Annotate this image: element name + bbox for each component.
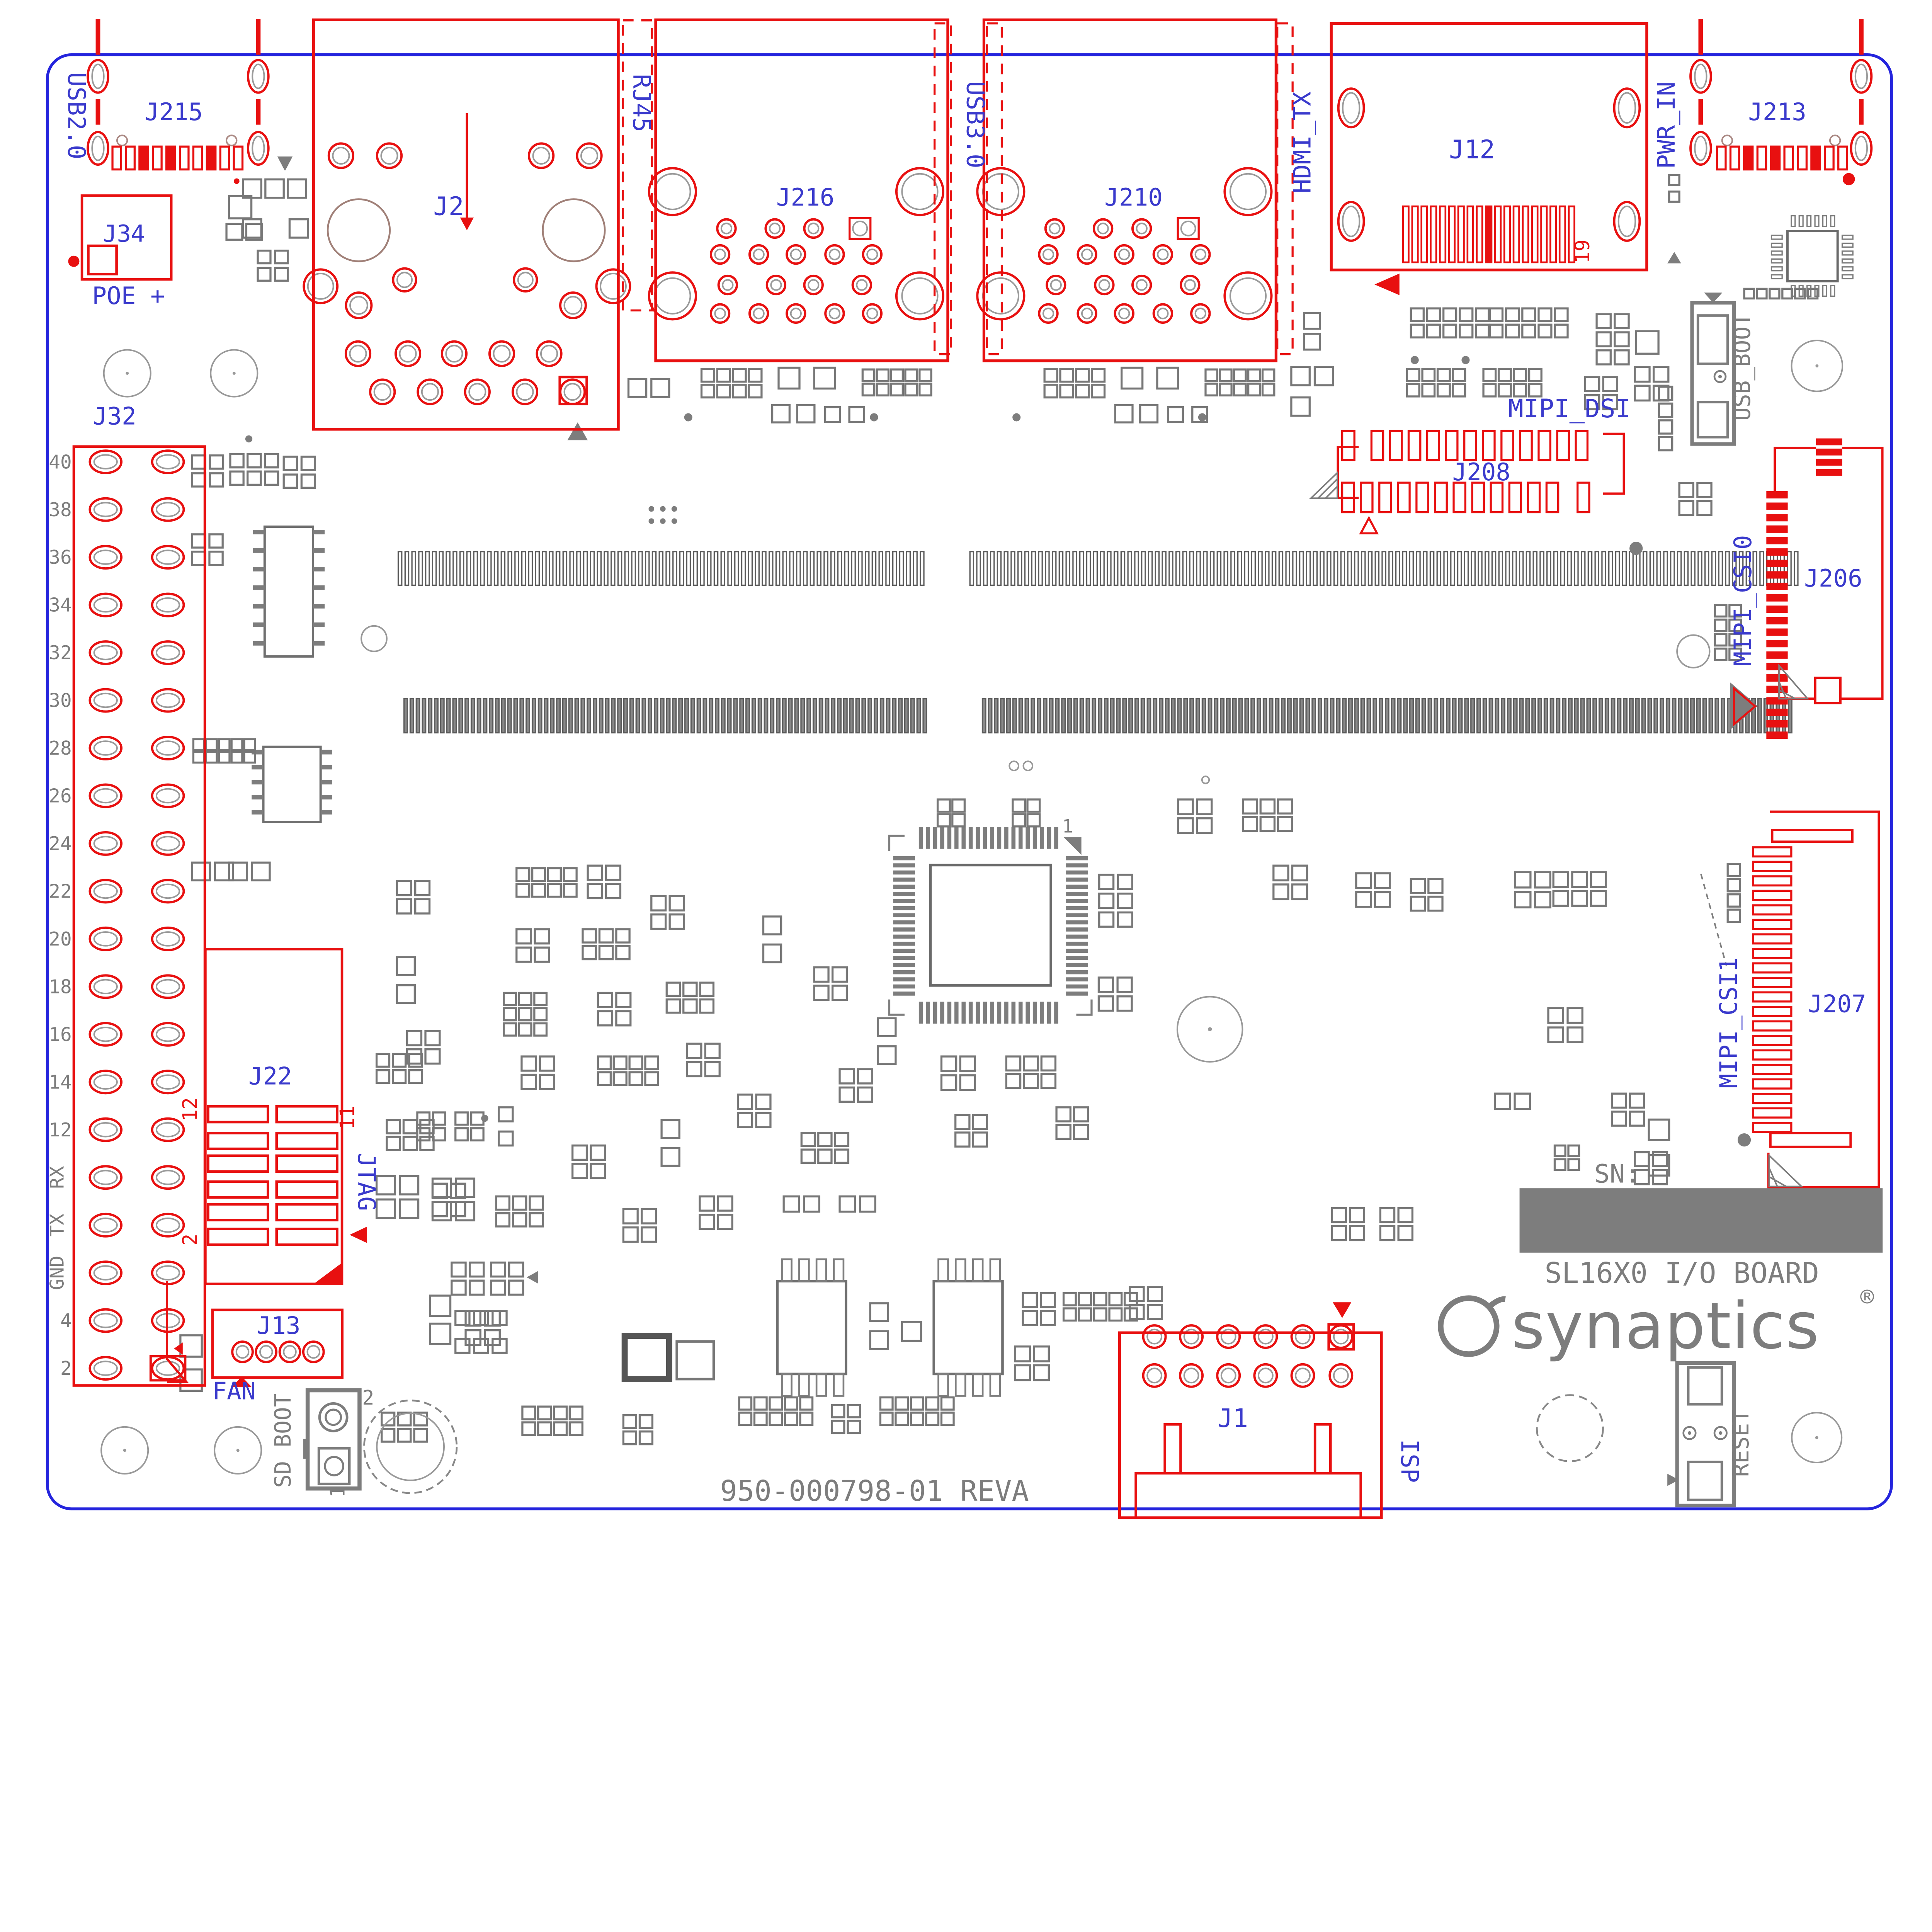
smd-component <box>749 385 762 398</box>
edge-finger <box>1471 699 1475 733</box>
pad-hole <box>581 148 597 164</box>
smd-component <box>1757 289 1767 298</box>
csi1-pad <box>1753 963 1791 973</box>
smd-component <box>1060 369 1073 382</box>
edge-finger <box>1196 699 1200 733</box>
smd-component <box>902 1322 921 1341</box>
edge-finger <box>1568 552 1571 585</box>
soic-pin <box>782 1374 792 1396</box>
edge-finger <box>982 699 986 733</box>
smd-component <box>701 369 714 382</box>
edge-finger <box>1605 699 1609 733</box>
qfp-pin <box>893 992 915 996</box>
edge-finger <box>728 699 731 733</box>
csi0-pad <box>1766 640 1787 647</box>
smd-component <box>1013 799 1025 812</box>
smd-component <box>920 384 931 395</box>
smd-component <box>598 1011 612 1026</box>
edge-finger <box>410 699 414 733</box>
edge-finger <box>1410 699 1413 733</box>
edge-finger <box>1269 699 1273 733</box>
smd-component <box>193 752 204 763</box>
jtag-pad <box>208 1229 268 1245</box>
soic-pin <box>939 1259 948 1281</box>
qfp-pin <box>961 1002 966 1024</box>
edge-finger <box>618 699 621 733</box>
edge-finger <box>1039 552 1042 585</box>
pad-hole <box>565 384 581 400</box>
via-dot <box>684 413 692 421</box>
edge-finger <box>1643 552 1647 585</box>
edge-finger <box>494 552 498 585</box>
pin1-dot <box>1843 173 1855 185</box>
pad-hole <box>156 980 179 994</box>
smd-component <box>1092 385 1105 398</box>
smd-component <box>701 385 714 398</box>
label-pin12: 12 <box>179 1097 202 1121</box>
smd-component <box>1398 1208 1412 1222</box>
edge-finger <box>1025 552 1028 585</box>
edge-finger <box>1306 699 1310 733</box>
smd-component <box>1260 799 1274 813</box>
edge-finger <box>1514 699 1517 733</box>
smd-component <box>517 868 529 881</box>
edge-finger <box>1362 552 1365 585</box>
edge-finger <box>646 552 649 585</box>
label-j12: J12 <box>1449 135 1495 165</box>
csi0-pad <box>1766 526 1787 533</box>
smd-component <box>1653 1170 1667 1184</box>
qfp-pin <box>1066 863 1088 867</box>
pad-hole <box>94 837 117 850</box>
edge-finger <box>426 552 429 585</box>
edge-finger <box>432 552 436 585</box>
smd-component <box>504 1008 516 1020</box>
csi1-pad <box>1753 1094 1791 1103</box>
smd-component <box>667 1000 680 1013</box>
smd-component <box>891 369 903 381</box>
smd-component <box>430 1296 451 1316</box>
csi1-pad <box>1753 1050 1791 1060</box>
smd-component <box>1234 369 1246 381</box>
jtag-pad <box>208 1106 268 1122</box>
j32-pin-label: 38 <box>49 498 71 521</box>
pad-hole <box>867 249 877 259</box>
smd-component <box>1495 1094 1510 1109</box>
smd-component <box>598 1056 611 1069</box>
edge-finger <box>1272 552 1276 585</box>
smd-component <box>1117 978 1132 992</box>
edge-finger <box>1451 552 1454 585</box>
csi1-pad <box>1753 992 1791 1002</box>
smd-component <box>425 1031 440 1045</box>
edge-finger <box>587 699 591 733</box>
j32-pin-label: 20 <box>49 928 71 950</box>
qfn-body <box>1787 231 1838 281</box>
qfp-pin <box>1066 970 1088 975</box>
smd-component <box>535 947 549 962</box>
smd-component <box>573 1146 587 1160</box>
edge-finger <box>557 699 560 733</box>
smd-component <box>591 1146 605 1160</box>
smd-component <box>645 1072 658 1085</box>
smd-component <box>284 457 297 470</box>
edge-finger <box>1667 699 1670 733</box>
smd-component <box>1422 384 1435 396</box>
hdmi-pad <box>1504 206 1510 262</box>
pad-hole <box>156 789 179 803</box>
qfp-pin <box>1066 892 1088 896</box>
pad-hole <box>94 789 117 803</box>
qfn-pin <box>1815 216 1819 226</box>
qfn-pin <box>1842 259 1853 263</box>
smd-pad <box>180 146 189 169</box>
smd-component <box>1808 289 1818 298</box>
edge-finger <box>1533 552 1537 585</box>
smd-component <box>451 1184 465 1198</box>
pad-hole <box>1695 136 1706 160</box>
edge-finger <box>1465 699 1468 733</box>
smd-component <box>920 369 931 381</box>
qfp-pin <box>926 1002 930 1024</box>
via-dot <box>649 518 654 524</box>
edge-finger <box>1664 552 1667 585</box>
smd-component <box>1429 879 1442 893</box>
label-usb2-port: USB2.0 <box>62 72 90 160</box>
pad-hole <box>94 1218 117 1232</box>
edge-finger <box>1288 699 1291 733</box>
edge-finger <box>862 699 866 733</box>
qfp-pin <box>926 827 930 849</box>
edge-finger <box>1361 699 1364 733</box>
qfp-pin <box>933 827 937 849</box>
smd-component <box>1603 377 1617 391</box>
label-j34: J34 <box>103 221 145 248</box>
soic-pin <box>834 1374 844 1396</box>
edge-finger <box>701 552 704 585</box>
j32-pin-label: GND <box>46 1256 68 1290</box>
reset-button <box>1667 1363 1734 1506</box>
smd-component <box>1262 369 1274 381</box>
pad-hole <box>715 249 725 259</box>
fiducial <box>226 135 236 145</box>
edge-finger <box>1417 552 1420 585</box>
smd-component <box>1023 1293 1037 1307</box>
edge-finger <box>1485 552 1489 585</box>
qfp-pin <box>961 827 966 849</box>
qfp-pin <box>893 949 915 953</box>
edge-finger <box>694 552 697 585</box>
csi1-pad <box>1753 1065 1791 1074</box>
smd-pad <box>1744 146 1752 169</box>
edge-finger <box>1550 699 1554 733</box>
qfp-pin <box>893 985 915 989</box>
smd-component <box>382 1429 395 1442</box>
soic-pin <box>253 604 265 609</box>
pad-hole <box>1098 223 1108 233</box>
courtyard-dash <box>1859 99 1864 125</box>
edge-finger <box>1062 699 1065 733</box>
edge-finger <box>1368 552 1372 585</box>
edge-finger <box>1593 699 1597 733</box>
edge-finger <box>1403 552 1406 585</box>
smd-pad <box>126 146 134 169</box>
qfp-pin <box>1066 956 1088 960</box>
edge-finger <box>556 552 560 585</box>
mount-hole-center <box>123 1449 126 1452</box>
smd-component <box>229 196 252 218</box>
smd-component <box>642 1228 656 1242</box>
csi0-pad <box>1766 548 1787 556</box>
edge-finger <box>1153 699 1157 733</box>
smd-component <box>905 369 917 381</box>
edge-finger <box>687 552 690 585</box>
edge-finger <box>1396 552 1400 585</box>
smd-pad <box>220 146 229 169</box>
qfp-pin <box>893 927 915 932</box>
smd-component <box>770 1397 782 1410</box>
csi0-pad <box>1816 469 1842 476</box>
qfn-pin <box>1831 216 1835 226</box>
smd-component <box>192 552 205 565</box>
qfp-pin <box>1066 935 1088 939</box>
qfp-pin <box>893 970 915 975</box>
smd-component <box>1715 605 1726 617</box>
csi1-pad <box>1753 1007 1791 1016</box>
edge-finger <box>923 699 927 733</box>
qfp-pin <box>893 871 915 875</box>
j32-pin-label: RX <box>46 1166 68 1189</box>
smd-component <box>1099 912 1114 927</box>
edge-finger <box>1404 699 1407 733</box>
smd-component <box>491 1281 505 1294</box>
via-dot <box>672 518 677 524</box>
smd-component <box>409 1054 422 1067</box>
smd-component <box>471 1128 484 1141</box>
edge-finger <box>1142 552 1145 585</box>
smd-component <box>499 1107 513 1121</box>
pad-hole <box>94 1170 117 1184</box>
edge-finger <box>1300 552 1303 585</box>
smd-component <box>509 1281 523 1294</box>
edge-finger <box>581 699 585 733</box>
edge-finger <box>1100 552 1104 585</box>
edge-finger <box>515 552 519 585</box>
edge-finger <box>1677 552 1681 585</box>
smd-component <box>651 379 669 397</box>
smd-component <box>538 1406 551 1419</box>
smd-component <box>623 1228 638 1242</box>
j32-pin-label: 30 <box>49 689 71 712</box>
smd-component <box>491 1262 505 1276</box>
edge-finger <box>604 552 608 585</box>
edge-finger <box>913 552 917 585</box>
smd-component <box>840 1069 854 1083</box>
smd-component <box>387 1137 400 1150</box>
edge-finger <box>1478 552 1482 585</box>
qfn-pin <box>1823 216 1827 226</box>
edge-finger <box>900 552 903 585</box>
smd-component <box>192 456 205 469</box>
orientation-mark <box>277 156 293 171</box>
edge-finger <box>1107 552 1111 585</box>
smd-component <box>779 368 799 389</box>
hole <box>1023 761 1032 770</box>
smd-component <box>1140 405 1158 422</box>
edge-finger <box>1282 699 1285 733</box>
part-number: 950-000798-01 REVA <box>720 1475 1029 1508</box>
edge-finger <box>824 552 828 585</box>
qfp-pin <box>1066 942 1088 946</box>
edge-finger <box>1204 552 1207 585</box>
smd-pad <box>207 146 215 169</box>
edge-finger <box>1556 699 1560 733</box>
smd-component <box>288 179 306 197</box>
j32-pin-label: 34 <box>49 594 71 616</box>
hdmi-pad <box>1514 206 1519 262</box>
smd-component <box>956 1115 969 1129</box>
pad-hole <box>1158 249 1168 259</box>
edge-finger <box>1502 699 1505 733</box>
pad-hole <box>791 249 801 259</box>
smd-component <box>687 1062 701 1077</box>
smd-component <box>1535 872 1551 888</box>
qfp-pin <box>969 827 973 849</box>
edge-finger <box>1263 699 1267 733</box>
edge-finger <box>563 552 566 585</box>
edge-finger <box>691 699 694 733</box>
edge-finger <box>1444 552 1447 585</box>
qfp-pin <box>893 920 915 925</box>
pad-hole <box>808 223 818 233</box>
pad-hole <box>156 1075 179 1089</box>
fiducial <box>1722 135 1732 145</box>
smd-component <box>1669 192 1679 202</box>
edge-finger <box>1080 552 1083 585</box>
edge-finger <box>625 552 628 585</box>
dsi-pad <box>1361 483 1372 512</box>
smd-component <box>1178 799 1193 814</box>
edge-finger <box>447 699 450 733</box>
edge-finger <box>1265 552 1269 585</box>
smd-component <box>1669 175 1679 185</box>
edge-finger <box>819 699 823 733</box>
edge-finger <box>632 552 635 585</box>
edge-finger <box>917 699 920 733</box>
pad-hole <box>308 274 333 299</box>
edge-finger <box>748 552 752 585</box>
smd-component <box>265 179 284 197</box>
qfp-pin <box>919 1002 923 1024</box>
smd-component <box>1024 1056 1038 1070</box>
smd-component <box>598 993 612 1007</box>
smd-component <box>1056 1125 1070 1139</box>
edge-finger <box>1135 699 1139 733</box>
smd-component <box>258 268 270 281</box>
edge-finger <box>1327 552 1331 585</box>
csi0-pad <box>1766 663 1787 670</box>
qfn-pin <box>1771 267 1782 271</box>
edge-finger <box>1155 552 1159 585</box>
smd-component <box>1278 799 1292 813</box>
edge-finger <box>1183 552 1186 585</box>
edge-finger <box>642 699 646 733</box>
edge-finger <box>1068 699 1071 733</box>
edge-finger <box>977 552 980 585</box>
smd-component <box>1027 814 1040 827</box>
edge-finger <box>1375 552 1379 585</box>
smd-component <box>564 884 577 897</box>
smd-pad <box>1811 146 1820 169</box>
smd-component <box>1770 289 1779 298</box>
dsi-pad <box>1576 431 1587 460</box>
soic-pin <box>313 530 325 534</box>
qfp-pin <box>990 1002 994 1024</box>
soic-pin <box>990 1374 1000 1396</box>
edge-finger <box>1334 552 1338 585</box>
smd-component <box>1659 437 1672 450</box>
smd-component <box>1197 799 1212 814</box>
csi1-pad <box>1753 949 1791 958</box>
soic-pin <box>321 810 332 815</box>
via-dot <box>1012 413 1020 421</box>
courtyard-dash <box>1698 99 1703 125</box>
smd-component <box>265 471 278 485</box>
edge-finger <box>459 699 463 733</box>
smd-pad <box>112 146 121 169</box>
smd-component <box>814 968 828 982</box>
soic-pin <box>782 1259 792 1281</box>
smd-component <box>1304 334 1320 350</box>
edge-finger <box>1691 552 1695 585</box>
smd-component <box>229 862 247 880</box>
hdmi-pad <box>1412 206 1418 262</box>
pad-hole <box>1099 280 1109 290</box>
pad-hole <box>1855 136 1867 160</box>
qfp-pin <box>976 1002 980 1024</box>
edge-finger <box>590 552 594 585</box>
pad-hole <box>1343 93 1359 123</box>
smd-component <box>1476 308 1489 321</box>
dsi-pad <box>1464 431 1476 460</box>
edge-finger <box>1227 699 1230 733</box>
smd-component <box>387 1120 400 1133</box>
edge-finger <box>529 552 532 585</box>
edge-finger <box>1123 699 1126 733</box>
smd-component <box>540 1056 554 1071</box>
pad-hole <box>156 1170 179 1184</box>
label-j206: J206 <box>1804 564 1862 592</box>
qfp-pin <box>893 913 915 917</box>
smd-component <box>530 1196 543 1209</box>
edge-finger <box>769 552 773 585</box>
qfp-pin <box>893 863 915 867</box>
edge-finger <box>801 699 804 733</box>
edge-finger <box>538 699 542 733</box>
smd-pad <box>139 146 148 169</box>
edge-finger <box>471 699 475 733</box>
smd-component <box>248 471 261 485</box>
smd-component <box>301 457 315 470</box>
smd-component <box>629 1056 642 1069</box>
pad-hole <box>1158 308 1168 318</box>
edge-finger <box>490 699 493 733</box>
smd-component <box>509 1262 523 1276</box>
smd-component <box>1506 308 1519 321</box>
smd-component <box>564 868 577 881</box>
qfp-pin <box>1066 927 1088 932</box>
smd-component <box>452 1281 466 1294</box>
